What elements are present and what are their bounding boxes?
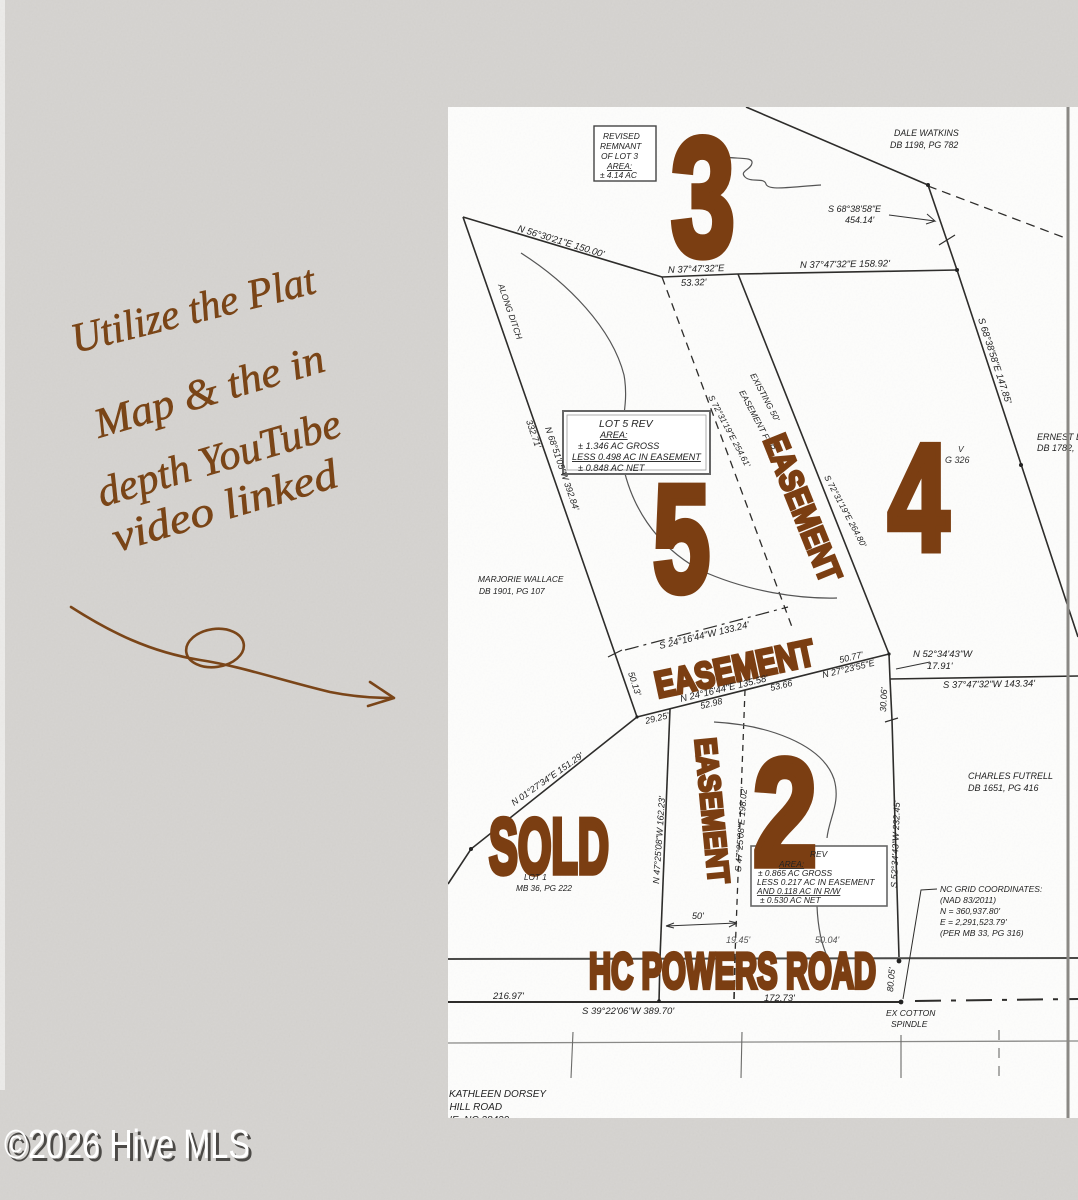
svg-text:MB 36, PG 222: MB 36, PG 222 bbox=[516, 884, 572, 893]
svg-text:N 52°34'43"W: N 52°34'43"W bbox=[913, 649, 973, 660]
svg-text:SOLD: SOLD bbox=[489, 802, 609, 890]
svg-text:± 4.14 AC: ± 4.14 AC bbox=[600, 170, 638, 180]
svg-text:KATHLEEN DORSEY: KATHLEEN DORSEY bbox=[449, 1089, 547, 1100]
svg-text:OF LOT 3: OF LOT 3 bbox=[601, 151, 638, 161]
svg-text:MARJORIE WALLACE: MARJORIE WALLACE bbox=[478, 574, 564, 584]
svg-text:CHARLES FUTRELL: CHARLES FUTRELL bbox=[968, 771, 1053, 781]
svg-text:REVISED: REVISED bbox=[603, 131, 640, 141]
svg-text:30.06': 30.06' bbox=[878, 687, 889, 712]
svg-text:REV: REV bbox=[810, 849, 829, 859]
svg-text:DB 1901, PG 107: DB 1901, PG 107 bbox=[479, 586, 545, 596]
svg-text:4: 4 bbox=[888, 413, 949, 583]
svg-text:DB 1651, PG 416: DB 1651, PG 416 bbox=[968, 783, 1039, 793]
svg-text:EX COTTON: EX COTTON bbox=[886, 1008, 936, 1018]
svg-text:S 37°47'32"W 143.34': S 37°47'32"W 143.34' bbox=[943, 678, 1037, 691]
svg-text:± 0.530 AC NET: ± 0.530 AC NET bbox=[760, 895, 821, 905]
svg-text:REMNANT: REMNANT bbox=[600, 141, 642, 151]
svg-text:(PER MB 33, PG 316): (PER MB 33, PG 316) bbox=[940, 928, 1024, 938]
svg-text:± 0.848 AC NET: ± 0.848 AC NET bbox=[578, 463, 646, 473]
svg-text:17.91': 17.91' bbox=[927, 661, 954, 672]
svg-text:S 68°38'58"E: S 68°38'58"E bbox=[828, 204, 882, 214]
svg-text:LOT 1: LOT 1 bbox=[524, 873, 547, 882]
svg-text:DB 1198, PG 782: DB 1198, PG 782 bbox=[890, 140, 958, 150]
svg-text:LOT 5 REV: LOT 5 REV bbox=[599, 418, 654, 430]
svg-text:N 37°47'32"E 158.92': N 37°47'32"E 158.92' bbox=[800, 258, 891, 271]
svg-text:E = 2,291,523.79': E = 2,291,523.79' bbox=[940, 917, 1007, 927]
svg-text:19.45': 19.45' bbox=[726, 935, 751, 945]
svg-text:K HILL ROAD: K HILL ROAD bbox=[440, 1102, 502, 1113]
svg-text:N = 360,937.80': N = 360,937.80' bbox=[940, 906, 1000, 916]
svg-text:50': 50' bbox=[692, 911, 704, 921]
svg-text:HC POWERS ROAD: HC POWERS ROAD bbox=[589, 943, 876, 999]
svg-text:NC GRID COORDINATES:: NC GRID COORDINATES: bbox=[940, 884, 1043, 894]
svg-text:S 39°22'06"W 389.70': S 39°22'06"W 389.70' bbox=[582, 1006, 675, 1017]
svg-text:AREA:: AREA: bbox=[599, 430, 628, 440]
svg-text:± 1.346 AC GROSS: ± 1.346 AC GROSS bbox=[578, 441, 660, 451]
svg-text:80.05': 80.05' bbox=[885, 967, 897, 992]
svg-text:216.97': 216.97' bbox=[492, 991, 525, 1002]
svg-text:DALE WATKINS: DALE WATKINS bbox=[894, 128, 959, 138]
svg-text:(NAD 83/2011): (NAD 83/2011) bbox=[940, 895, 996, 905]
svg-text:172.73': 172.73' bbox=[764, 993, 796, 1004]
svg-text:3: 3 bbox=[671, 103, 735, 291]
svg-text:50.04': 50.04' bbox=[815, 935, 840, 945]
svg-text:454.14': 454.14' bbox=[845, 215, 875, 225]
svg-text:©2026 Hive MLS: ©2026 Hive MLS bbox=[4, 1121, 250, 1167]
svg-text:ERNEST L: ERNEST L bbox=[1037, 432, 1078, 442]
svg-text:5: 5 bbox=[653, 454, 710, 624]
svg-text:SPINDLE: SPINDLE bbox=[891, 1019, 928, 1029]
